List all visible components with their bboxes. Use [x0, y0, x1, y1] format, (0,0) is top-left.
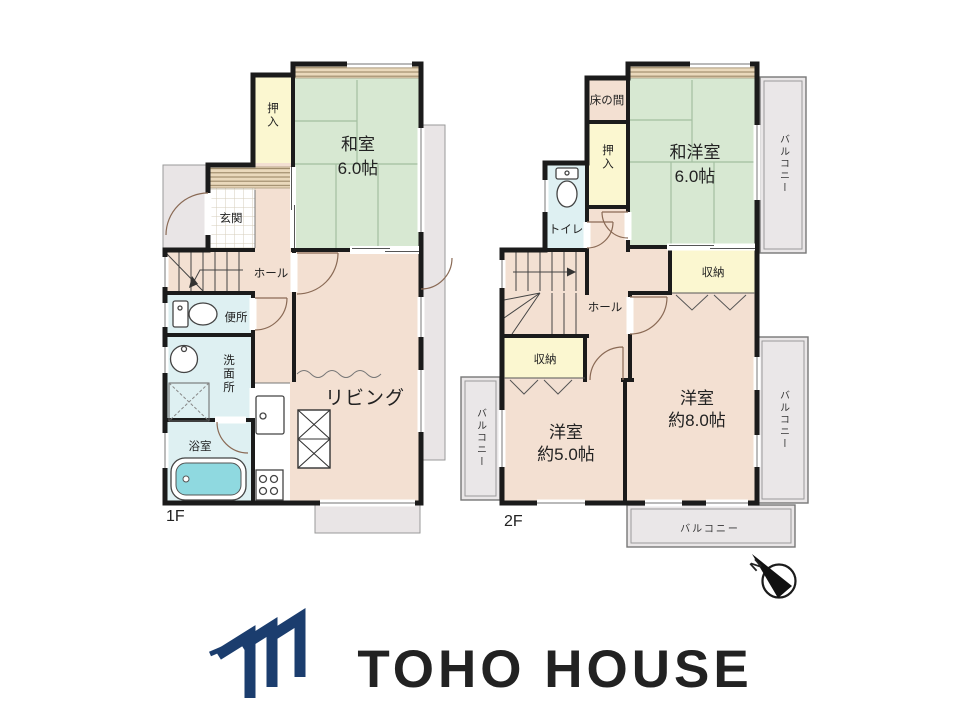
wayoushitsu-label: 和洋室 — [670, 143, 721, 162]
toire-label: トイレ — [549, 224, 584, 236]
entrance-porch — [163, 165, 208, 250]
compass: N — [747, 554, 796, 598]
compass-north-label: N — [747, 556, 765, 575]
yoshitsu5-label: 洋室 — [549, 423, 583, 442]
yoshitsu8-size: 約8.0帖 — [668, 411, 726, 430]
floor1-plan: 和室 6.0帖 押入 玄関 ホール 便所 洗面所 浴室 リビング 1F — [162, 61, 453, 534]
storage-a-label: 収納 — [702, 266, 725, 279]
floorplan-page: 和室 6.0帖 押入 玄関 ホール 便所 洗面所 浴室 リビング 1F バルコニ… — [0, 0, 960, 720]
brand-logo: TOHO HOUSE — [210, 618, 753, 699]
genkan-label: 玄関 — [220, 211, 243, 225]
hall-1f-label: ホール — [254, 267, 289, 280]
balcony-bottom-label: バルコニー — [680, 523, 740, 535]
tokonoma-label: 床の間 — [590, 93, 625, 107]
kitchen-island-icon — [298, 410, 330, 468]
floorplan-svg: 和室 6.0帖 押入 玄関 ホール 便所 洗面所 浴室 リビング 1F バルコニ… — [0, 0, 960, 720]
washitsu-size: 6.0帖 — [338, 159, 379, 178]
stove-icon — [256, 470, 283, 500]
door-gap-bath — [215, 417, 246, 424]
toilet-1f-icon — [173, 301, 217, 327]
washitsu-shutter-band — [295, 66, 419, 78]
door-gap-yoshitsu8 — [627, 297, 634, 334]
balcony-bottom: バルコニー — [627, 505, 795, 547]
logo-text: TOHO HOUSE — [357, 640, 752, 699]
sliding-gap-1 — [290, 167, 296, 248]
door-gap-living — [291, 253, 298, 292]
floor2-plan: バルコニー バルコニー バルコニー バルコニー — [461, 61, 808, 548]
logo-mark-icon — [210, 618, 300, 698]
benjo-label: 便所 — [225, 311, 248, 324]
wayoushitsu-size: 6.0帖 — [675, 167, 716, 186]
sliding-gap-3 — [667, 244, 755, 251]
bathtub-icon — [171, 458, 246, 500]
door-gap-entrance — [205, 193, 212, 235]
door-gap-wayou — [625, 212, 632, 240]
washbasin-icon — [171, 346, 198, 373]
senmenjo-label: 洗面所 — [222, 354, 235, 395]
hall-2f-label: ホール — [588, 301, 623, 314]
yoshitsu5-size: 約5.0帖 — [537, 445, 595, 464]
wayoushitsu-shutter-band — [630, 66, 755, 78]
balcony-top-right-label: バルコニー — [778, 134, 790, 194]
balcony-left: バルコニー — [461, 377, 500, 500]
door-gap-toire — [584, 222, 591, 248]
floor1-label: 1F — [166, 508, 185, 525]
washitsu-label: 和室 — [341, 135, 375, 154]
bottom-porch — [315, 503, 420, 533]
oshiire-1f-label: 押入 — [266, 101, 279, 129]
yoshitsu8-label: 洋室 — [680, 389, 714, 408]
balcony-bottom-right-label: バルコニー — [778, 390, 790, 450]
kitchen-sink-icon — [256, 396, 284, 434]
genkan-cabinet-band — [210, 167, 291, 188]
oshiire-2f-label: 押入 — [601, 143, 614, 171]
door-gap-benjo — [250, 298, 257, 330]
yokushitsu-label: 浴室 — [189, 439, 212, 453]
balcony-left-label: バルコニー — [475, 408, 487, 468]
toilet-2f-icon — [556, 168, 578, 207]
side-porch — [421, 125, 445, 460]
balcony-bottom-right: バルコニー — [758, 337, 808, 503]
sliding-gap-2 — [350, 246, 419, 254]
living-label: リビング — [325, 387, 405, 409]
storage-b-label: 収納 — [534, 353, 557, 366]
balcony-top-right: バルコニー — [760, 77, 806, 253]
floor2-label: 2F — [504, 513, 523, 530]
